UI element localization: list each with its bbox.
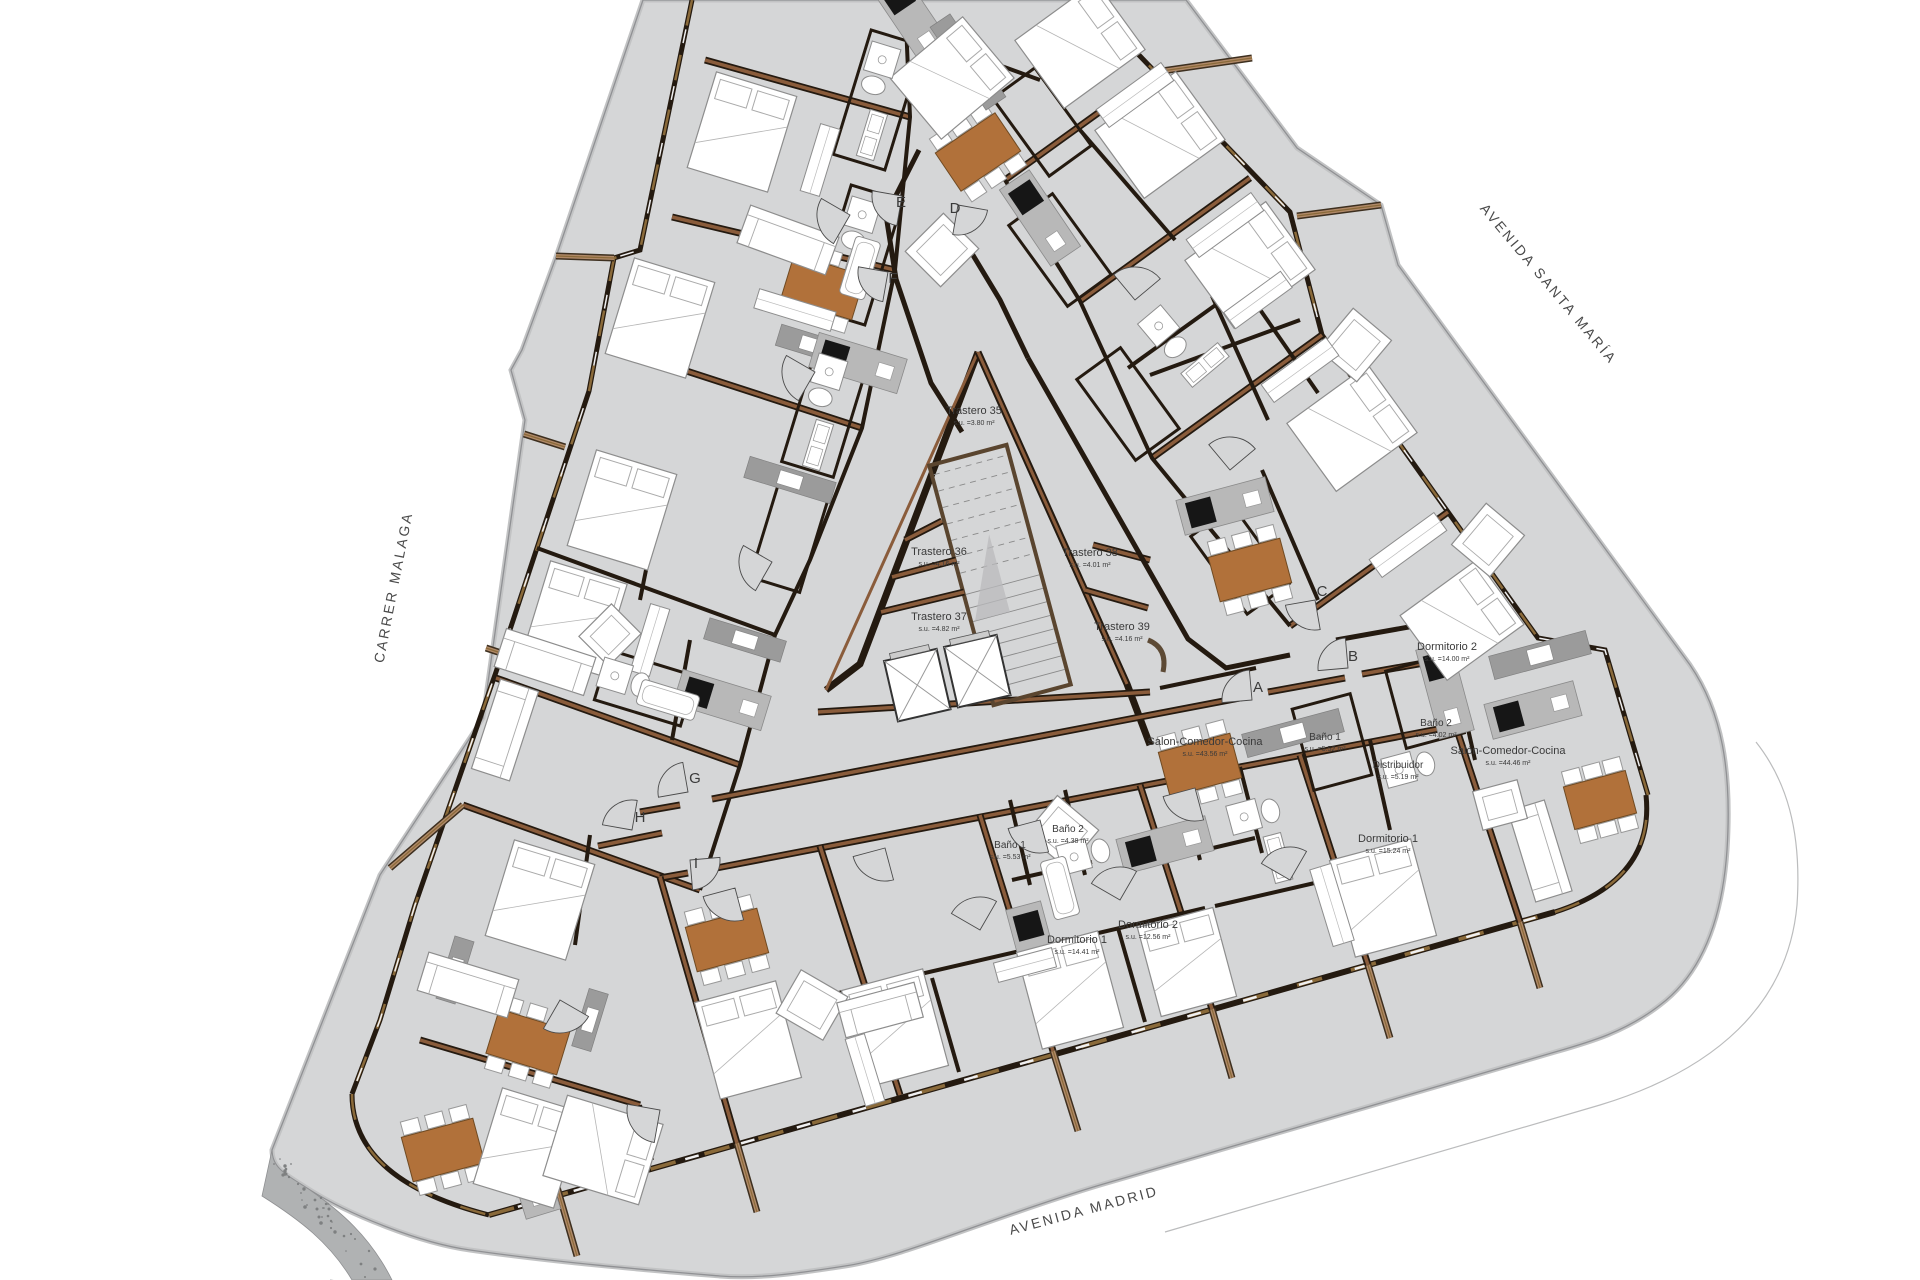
svg-text:s.u. =5.53 m²: s.u. =5.53 m² [989,854,1031,861]
svg-text:s.u. =12.56 m²: s.u. =12.56 m² [1126,934,1172,941]
svg-text:Salón-Comedor-Cocina: Salón-Comedor-Cocina [1451,745,1567,757]
svg-text:s.u. =5.19 m²: s.u. =5.19 m² [1377,774,1419,781]
svg-text:Dormitorio 1: Dormitorio 1 [1358,833,1418,845]
svg-text:s.u. =15.24 m²: s.u. =15.24 m² [1366,848,1412,855]
svg-text:Baño 2: Baño 2 [1420,718,1452,729]
svg-text:s.u. =14.00 m²: s.u. =14.00 m² [1425,656,1471,663]
svg-text:s.u. =4.16 m²: s.u. =4.16 m² [1101,636,1143,643]
svg-text:s.u. =14.41 m²: s.u. =14.41 m² [1055,949,1101,956]
svg-text:I: I [694,855,698,872]
svg-text:s.u. =44.46 m²: s.u. =44.46 m² [1486,760,1532,767]
svg-text:s.u. =4.02 m²: s.u. =4.02 m² [1415,732,1457,739]
svg-text:Dormitorio 1: Dormitorio 1 [1047,934,1107,946]
svg-text:E: E [896,194,906,211]
svg-text:D: D [950,200,961,217]
svg-text:Baño 2: Baño 2 [1052,824,1084,835]
svg-text:Baño 1: Baño 1 [994,840,1026,851]
svg-text:Dormitorio 2: Dormitorio 2 [1417,641,1477,653]
svg-text:Trastero 38: Trastero 38 [1062,547,1118,559]
svg-text:Trastero 37: Trastero 37 [911,611,967,623]
svg-text:Salon-Comedor-Cocina: Salon-Comedor-Cocina [1148,736,1264,748]
svg-text:F: F [888,270,897,287]
svg-text:G: G [689,770,701,787]
svg-text:s.u. =3.80 m²: s.u. =3.80 m² [953,420,995,427]
svg-text:Trastero 39: Trastero 39 [1094,621,1150,633]
svg-text:Distribuidor: Distribuidor [1373,760,1424,771]
svg-text:s.u. =5.52 m²: s.u. =5.52 m² [1304,746,1346,753]
svg-text:Trastero 36: Trastero 36 [911,546,967,558]
svg-text:H: H [635,809,646,826]
svg-text:C: C [1317,583,1328,600]
svg-text:Trastero 35: Trastero 35 [946,405,1002,417]
svg-text:Baño 1: Baño 1 [1309,732,1341,743]
svg-text:s.u. =4.82 m²: s.u. =4.82 m² [918,626,960,633]
svg-text:s.u. =4.16 m²: s.u. =4.16 m² [918,561,960,568]
svg-text:A: A [1253,679,1263,696]
svg-text:Dormitorio 2: Dormitorio 2 [1118,919,1178,931]
svg-text:s.u. =4.01 m²: s.u. =4.01 m² [1069,562,1111,569]
svg-text:s.u. =4.38 m²: s.u. =4.38 m² [1047,838,1089,845]
svg-text:s.u. =43.56 m²: s.u. =43.56 m² [1183,751,1229,758]
svg-text:B: B [1348,648,1358,665]
